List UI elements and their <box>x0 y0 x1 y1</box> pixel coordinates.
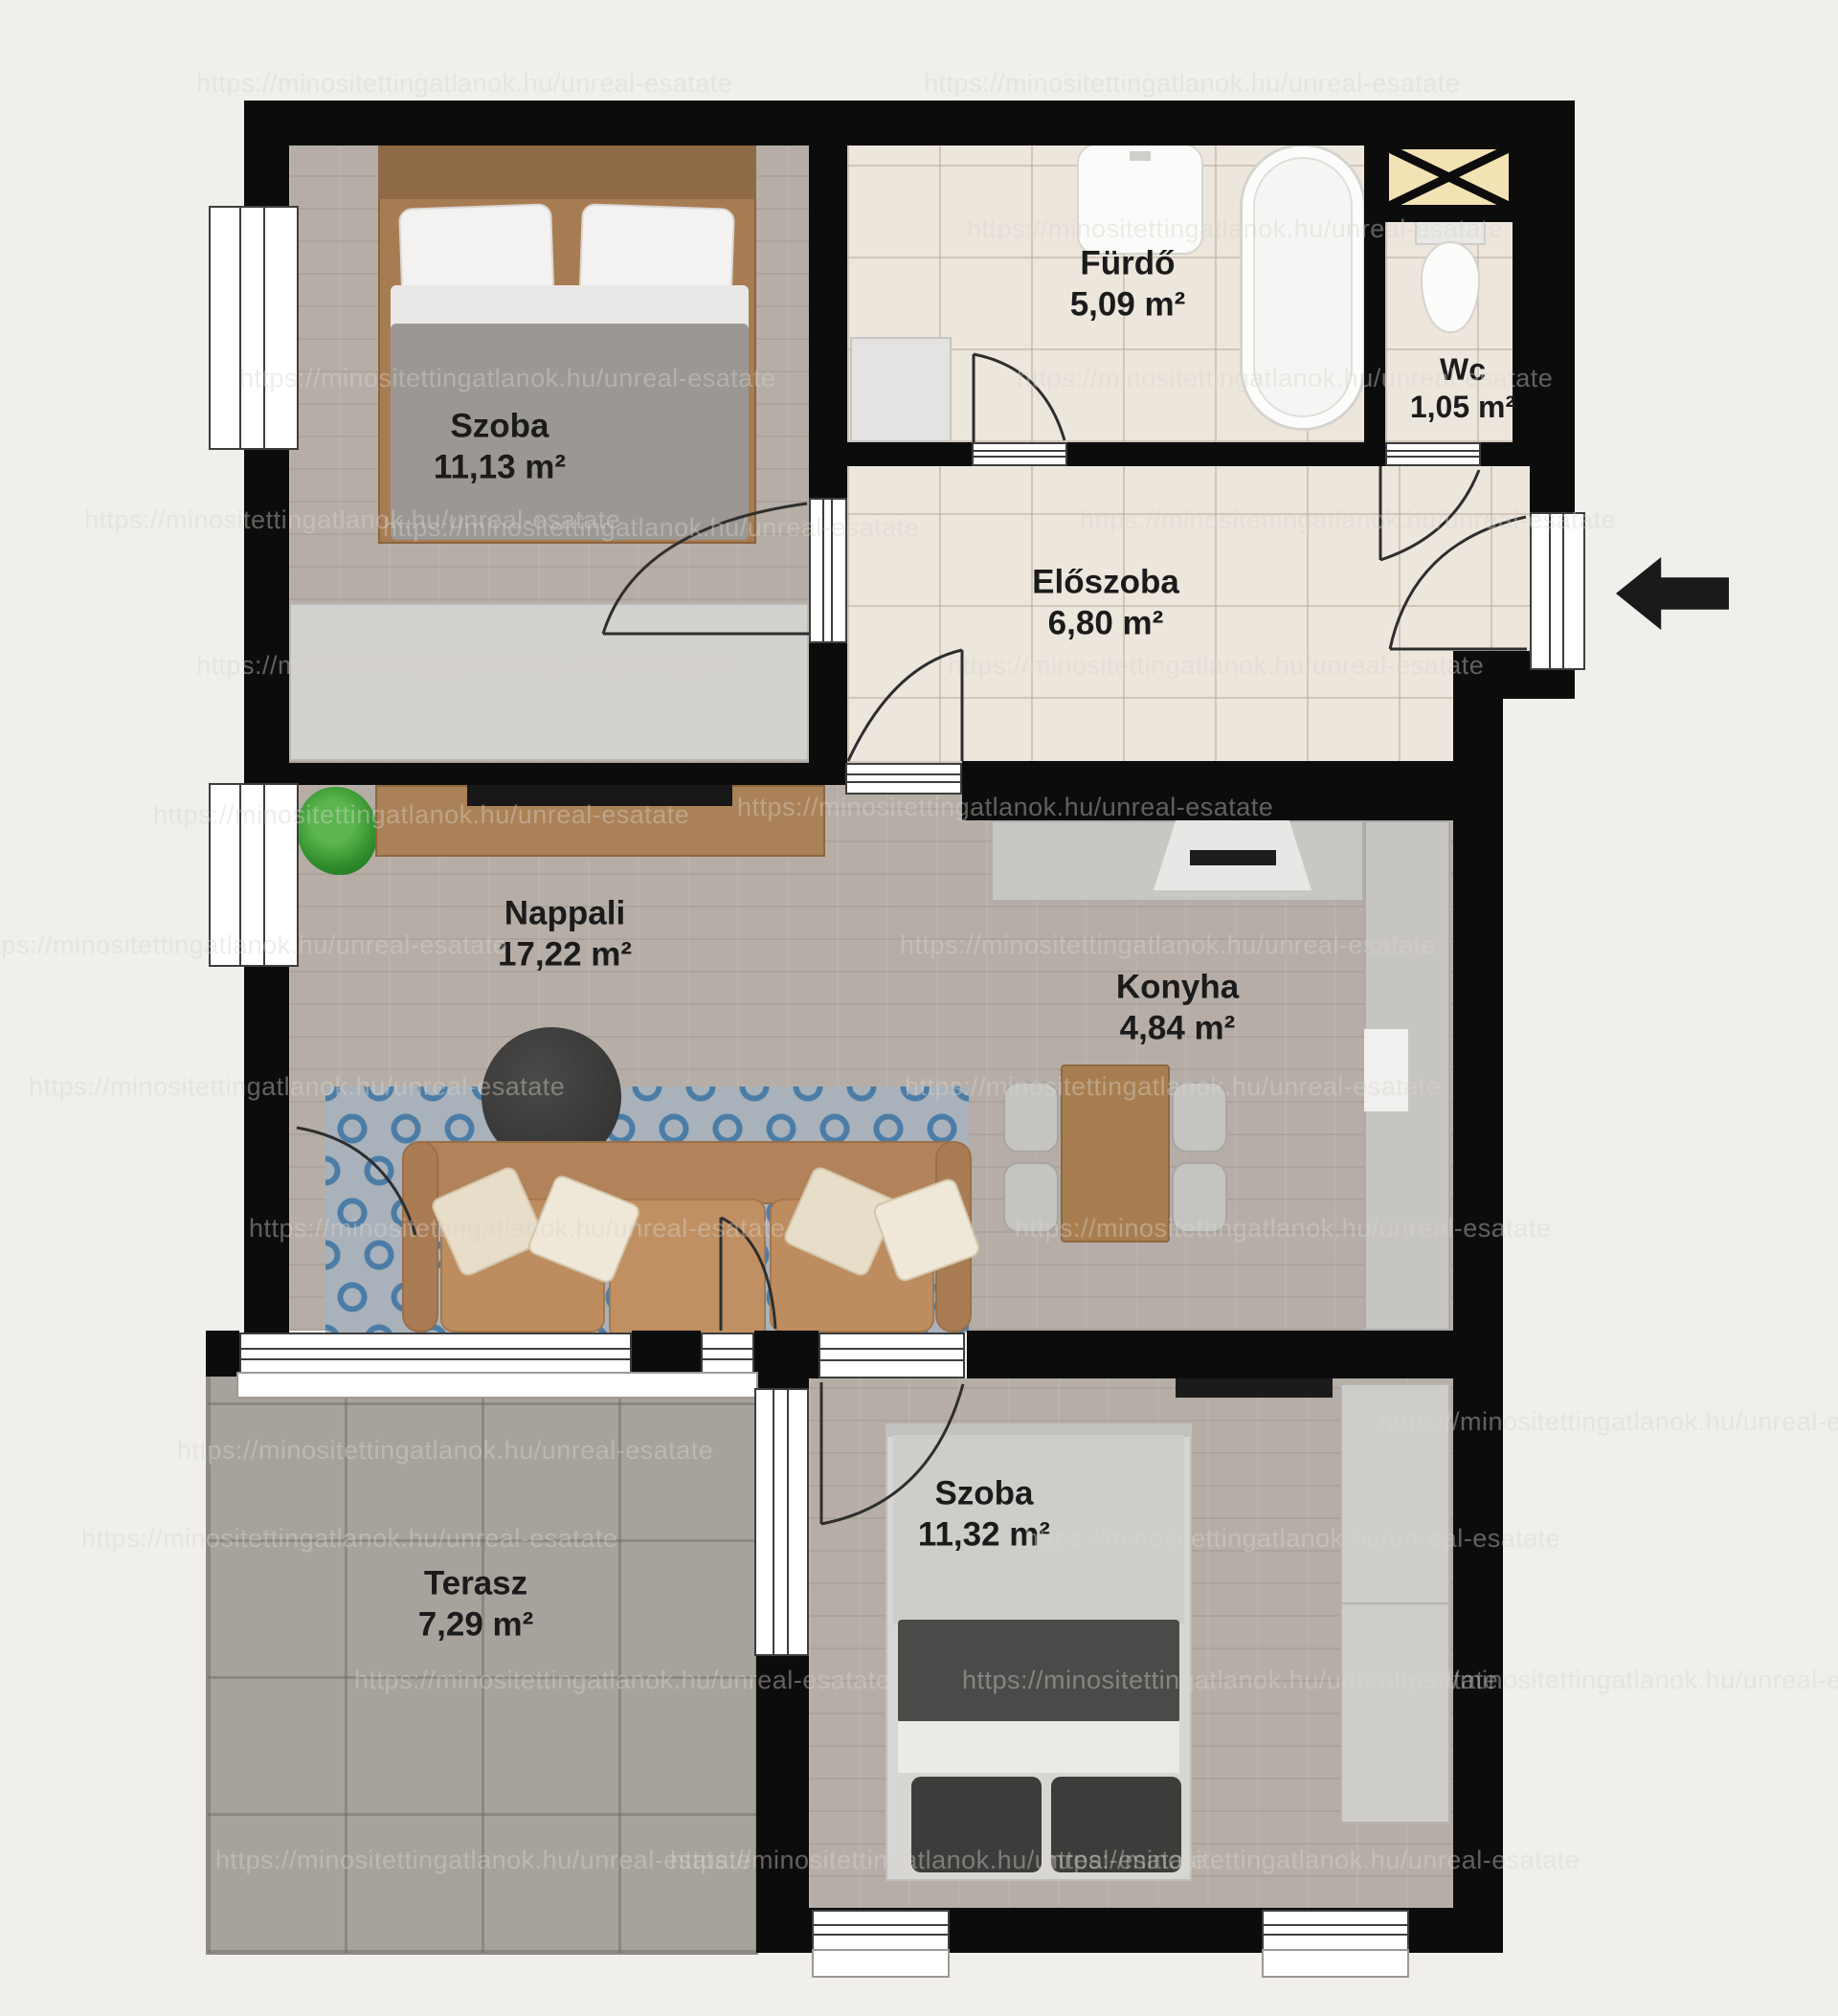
room-name: Fürdő <box>1070 243 1186 284</box>
watermark-text: https://minositettingatlanok.hu/unreal-e… <box>737 793 1273 822</box>
watermark-text: https://minositettingatlanok.hu/unreal-e… <box>1378 1407 1838 1437</box>
watermark-text: https://minositettingatlanok.hu/unreal-e… <box>177 1436 713 1466</box>
room-label-terasz: Terasz 7,29 m² <box>418 1563 534 1645</box>
room-label-nappali: Nappali 17,22 m² <box>498 893 632 974</box>
room-label-szoba-1: Szoba 11,13 m² <box>434 406 566 487</box>
watermark-text: https://minositettingatlanok.hu/unreal-e… <box>900 930 1436 960</box>
watermark-text: https://minositettingatlanok.hu/unreal-e… <box>196 651 732 681</box>
room-label-furdo: Fürdő 5,09 m² <box>1070 243 1186 325</box>
floorplan-canvas: Szoba 11,13 m² Fürdő 5,09 m² Wc 1,05 m² … <box>0 0 1838 2016</box>
room-name: Nappali <box>498 893 632 934</box>
room-area: 1,05 m² <box>1410 389 1515 426</box>
room-area: 5,09 m² <box>1070 284 1186 325</box>
shaft-vent <box>1385 146 1513 209</box>
watermark-text: https://minositettingatlanok.hu/unreal-e… <box>0 930 507 960</box>
watermark-text: https://minositettingatlanok.hu/unreal-e… <box>81 1524 617 1554</box>
watermark-text: https://minositettingatlanok.hu/unreal-e… <box>924 69 1460 99</box>
watermark-text: https://minositettingatlanok.hu/unreal-e… <box>1080 505 1616 535</box>
watermark-text: https://minositettingatlanok.hu/unreal-e… <box>239 364 775 393</box>
watermark-text: https://minositettingatlanok.hu/unreal-e… <box>1043 1846 1580 1875</box>
watermark-text: https://minositettingatlanok.hu/unreal-e… <box>1378 1666 1838 1695</box>
door-arc <box>1390 517 1526 649</box>
door-arc <box>848 650 962 761</box>
room-area: 7,29 m² <box>418 1604 534 1646</box>
room-name: Terasz <box>418 1563 534 1604</box>
watermark-text: https://minositettingatlanok.hu/unreal-e… <box>249 1214 785 1243</box>
watermark-text: https://minositettingatlanok.hu/unreal-e… <box>948 651 1484 681</box>
room-name: Előszoba <box>1032 562 1179 603</box>
watermark-text: https://minositettingatlanok.hu/unreal-e… <box>967 214 1503 244</box>
room-area: 17,22 m² <box>498 934 632 975</box>
room-name: Konyha <box>1116 967 1239 1008</box>
watermark-text: https://minositettingatlanok.hu/unreal-e… <box>905 1072 1441 1102</box>
watermark-text: https://minositettingatlanok.hu/unreal-e… <box>153 800 689 830</box>
watermark-text: https://minositettingatlanok.hu/unreal-e… <box>29 1072 565 1102</box>
room-label-konyha: Konyha 4,84 m² <box>1116 967 1239 1048</box>
room-name: Szoba <box>918 1473 1050 1514</box>
door-swings-layer <box>0 0 1838 2016</box>
room-area: 4,84 m² <box>1116 1008 1239 1049</box>
room-area: 11,13 m² <box>434 447 566 488</box>
watermark-text: https://minositettingatlanok.hu/unreal-e… <box>383 513 919 543</box>
watermark-text: https://minositettingatlanok.hu/unreal-e… <box>1015 1214 1551 1243</box>
room-area: 6,80 m² <box>1032 603 1179 644</box>
watermark-text: https://minositettingatlanok.hu/unreal-e… <box>354 1666 890 1695</box>
room-label-eloszoba: Előszoba 6,80 m² <box>1032 562 1179 643</box>
room-name: Szoba <box>434 406 566 447</box>
watermark-text: https://minositettingatlanok.hu/unreal-e… <box>196 69 732 99</box>
watermark-text: https://minositettingatlanok.hu/unreal-e… <box>1024 1524 1560 1554</box>
watermark-text: https://minositettingatlanok.hu/unreal-e… <box>1017 364 1553 393</box>
